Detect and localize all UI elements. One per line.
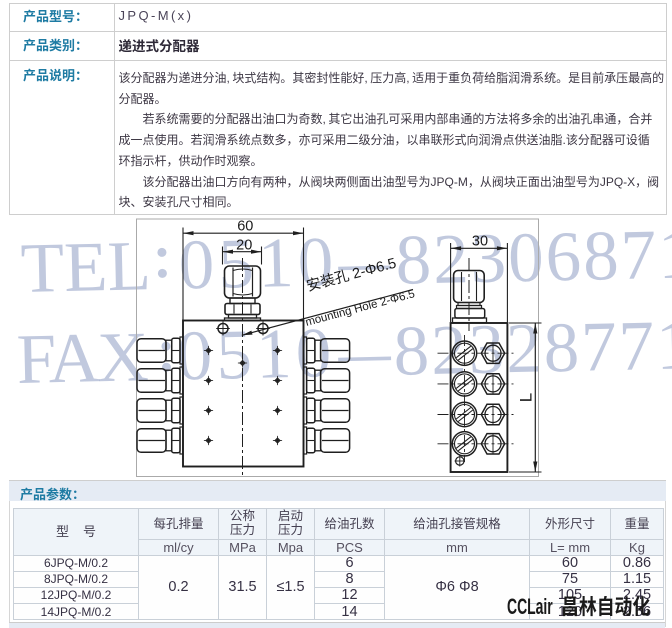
svg-text:mounting Hole 2-Φ6.5: mounting Hole 2-Φ6.5	[304, 288, 416, 329]
svg-text:30: 30	[472, 234, 488, 250]
svg-text:L: L	[517, 393, 536, 402]
svg-text:60: 60	[237, 218, 253, 234]
svg-text:安装孔 2-Φ6.5: 安装孔 2-Φ6.5	[305, 255, 398, 295]
svg-text:20: 20	[236, 237, 252, 253]
